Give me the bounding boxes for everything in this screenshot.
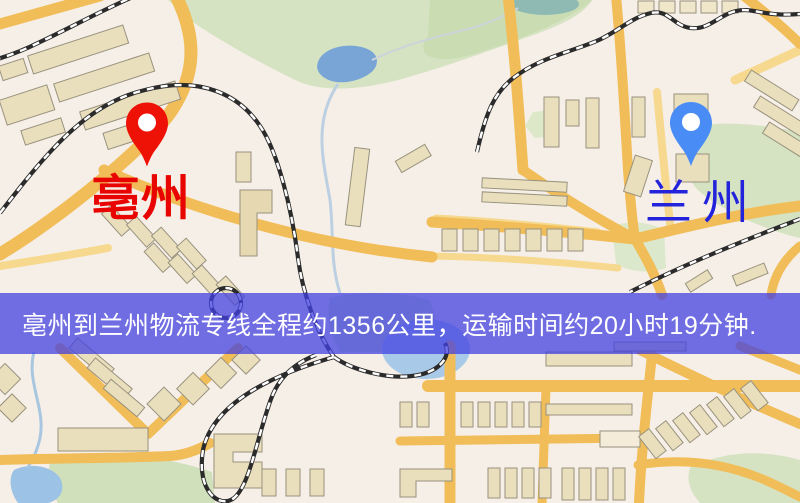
route-info-banner: 亳州到兰州物流专线全程约1356公里，运输时间约20小时19分钟. — [0, 293, 800, 354]
origin-pin-icon[interactable] — [123, 100, 171, 169]
destination-label: 兰州 — [645, 179, 759, 226]
origin-label: 亳州 — [91, 175, 191, 224]
map-canvas[interactable] — [0, 0, 800, 503]
destination-pin-icon[interactable] — [667, 100, 715, 168]
route-info-text: 亳州到兰州物流专线全程约1356公里，运输时间约20小时19分钟. — [22, 306, 757, 342]
map-viewport[interactable]: 亳州 兰州 亳州到兰州物流专线全程约1356公里，运输时间约20小时19分钟. — [0, 0, 800, 503]
